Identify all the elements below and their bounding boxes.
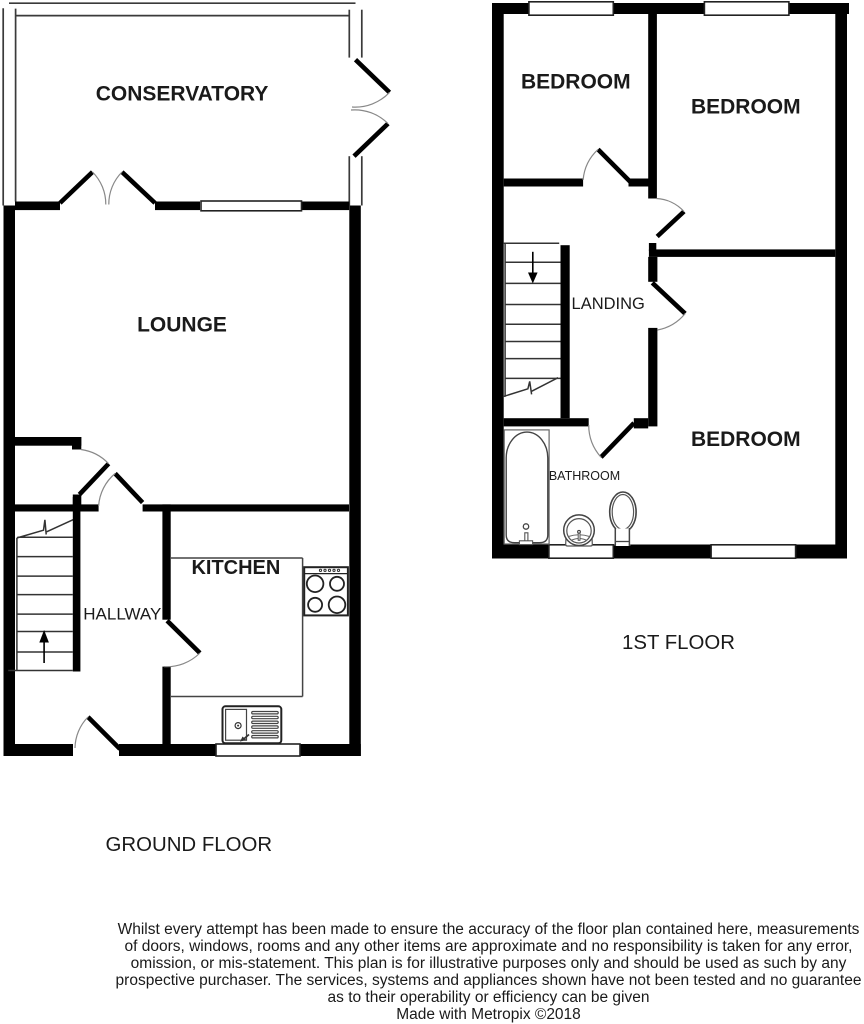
svg-text:BEDROOM: BEDROOM (521, 71, 631, 94)
svg-text:BEDROOM: BEDROOM (691, 96, 801, 119)
svg-text:BATHROOM: BATHROOM (549, 469, 620, 483)
svg-text:prospective purchaser. The ser: prospective purchaser. The services, sys… (116, 972, 862, 989)
svg-text:Whilst every attempt has been: Whilst every attempt has been made to en… (118, 921, 860, 938)
svg-text:CONSERVATORY: CONSERVATORY (96, 83, 269, 106)
svg-text:BEDROOM: BEDROOM (691, 428, 801, 451)
svg-text:omission, or mis-statement. Th: omission, or mis-statement. This plan is… (131, 955, 847, 972)
svg-text:Made with Metropix ©2018: Made with Metropix ©2018 (396, 1006, 581, 1023)
svg-text:as to their operability or eff: as to their operability or efficiency ca… (328, 989, 650, 1006)
svg-text:1ST FLOOR: 1ST FLOOR (622, 632, 735, 654)
svg-text:LOUNGE: LOUNGE (137, 314, 227, 337)
svg-text:KITCHEN: KITCHEN (191, 557, 280, 579)
svg-text:of doors, windows, rooms and a: of doors, windows, rooms and any other i… (124, 938, 852, 955)
svg-text:LANDING: LANDING (572, 295, 645, 313)
svg-text:GROUND FLOOR: GROUND FLOOR (106, 834, 273, 856)
svg-text:HALLWAY: HALLWAY (83, 605, 161, 624)
